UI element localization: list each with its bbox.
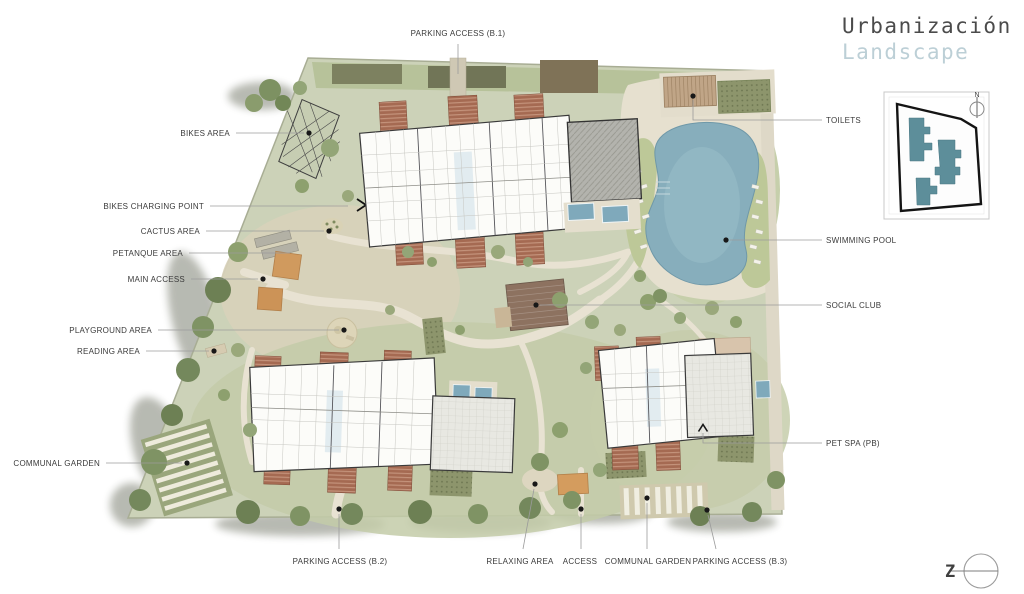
callout-parking-access-b1: PARKING ACCESS (B.1) xyxy=(411,29,506,38)
callout-reading-area: READING AREA xyxy=(77,347,140,356)
callout-parking-access-b2: PARKING ACCESS (B.2) xyxy=(293,557,388,566)
callout-playground-area: PLAYGROUND AREA xyxy=(69,326,152,335)
toilets-pergola xyxy=(659,69,775,117)
marker-dot-cactus-area xyxy=(326,228,331,233)
logo-mark: Z xyxy=(945,554,998,588)
roof-gray-southwest xyxy=(430,396,515,473)
marker-dot-reading-area xyxy=(211,348,216,353)
callout-swimming-pool: SWIMMING POOL xyxy=(826,236,897,245)
playground-surface xyxy=(327,318,357,348)
landscape-masterplan-page: Urbanización Landscape xyxy=(0,0,1024,594)
callout-communal-garden-west: COMMUNAL GARDEN xyxy=(13,459,100,468)
callout-bikes-charging-point: BIKES CHARGING POINT xyxy=(103,202,204,211)
marker-dot-communal-garden-south xyxy=(644,495,649,500)
marker-dot-parking-access-b3 xyxy=(704,507,709,512)
marker-dot-relaxing-area xyxy=(532,481,537,486)
marker-dot-communal-garden-west xyxy=(184,460,189,465)
marker-dot-swimming-pool xyxy=(723,237,728,242)
north-label: N xyxy=(974,92,979,99)
callout-pet-spa: PET SPA (PB) xyxy=(826,439,880,448)
callout-access: ACCESS xyxy=(563,557,597,566)
marker-dot-social-club xyxy=(533,302,538,307)
site-plan-drawing: N Z PARKING ACCESS (B.1)BIKES AREABIKES … xyxy=(0,0,1024,594)
plunge-pool-1 xyxy=(568,203,595,220)
callout-petanque-area: PETANQUE AREA xyxy=(113,249,184,258)
marker-dot-main-access xyxy=(260,276,265,281)
callout-social-club: SOCIAL CLUB xyxy=(826,301,881,310)
callout-cactus-area: CACTUS AREA xyxy=(141,227,201,236)
title-block: Urbanización Landscape xyxy=(842,13,1012,65)
main-access-pavilion-1 xyxy=(272,251,301,279)
callout-toilets: TOILETS xyxy=(826,116,861,125)
plunge-pool-5 xyxy=(756,381,771,398)
title-line2: Landscape xyxy=(842,39,1012,65)
key-map: N xyxy=(884,92,989,219)
main-access-pavilion-2 xyxy=(257,287,282,311)
callout-main-access: MAIN ACCESS xyxy=(128,275,185,284)
plunge-pool-2 xyxy=(602,205,629,222)
marker-dot-toilets xyxy=(690,93,695,98)
roof-gray-north xyxy=(567,119,641,203)
cactus-area-bed xyxy=(321,218,343,234)
callout-relaxing-area: RELAXING AREA xyxy=(486,557,554,566)
marker-dot-access xyxy=(578,506,583,511)
callout-communal-garden-south: COMMUNAL GARDEN xyxy=(605,557,692,566)
callout-bikes-area: BIKES AREA xyxy=(180,129,230,138)
relaxing-area-gravel xyxy=(522,468,558,492)
logo-letter: Z xyxy=(945,562,955,582)
marker-dot-parking-access-b2 xyxy=(336,506,341,511)
marker-dot-playground-area xyxy=(341,327,346,332)
roof-gray-southeast xyxy=(685,353,754,437)
callout-parking-access-b3: PARKING ACCESS (B.3) xyxy=(693,557,788,566)
title-line1: Urbanización xyxy=(842,13,1012,39)
marker-dot-bikes-area xyxy=(306,130,311,135)
